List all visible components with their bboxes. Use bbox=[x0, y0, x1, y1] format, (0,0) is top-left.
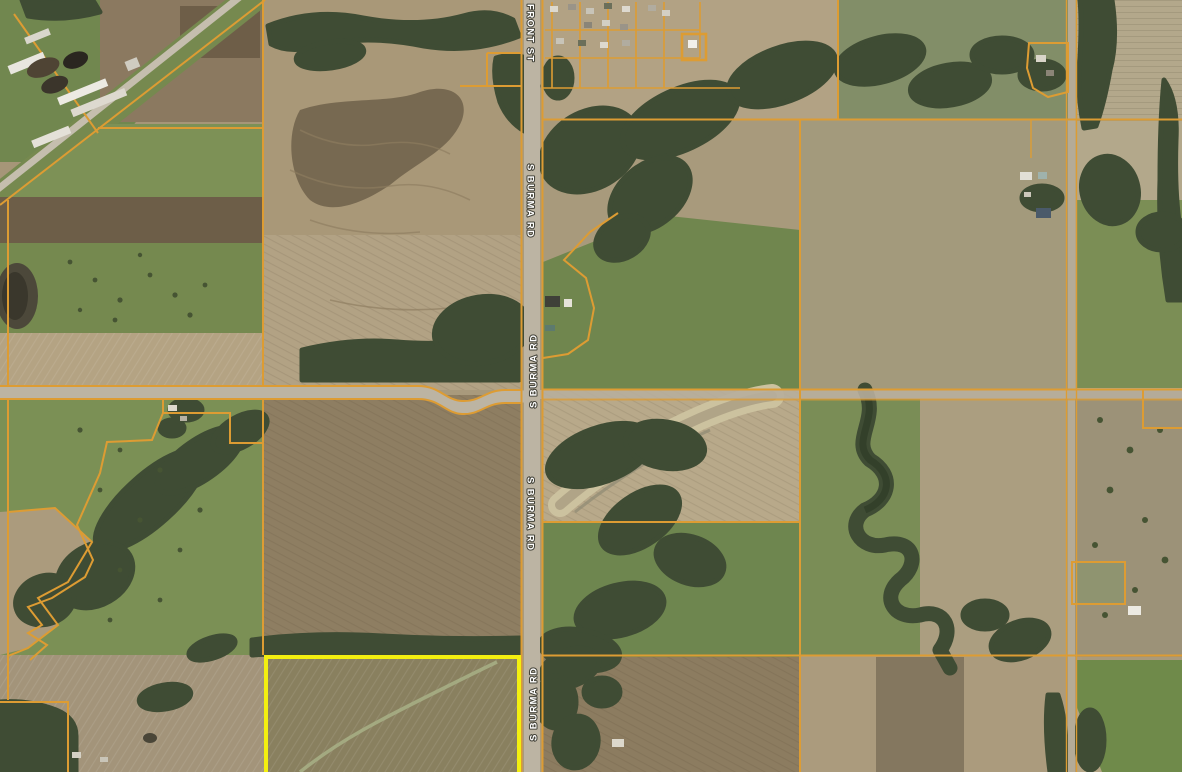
aerial-map[interactable]: FRONT ST S BURMA RD S BURMA RD S BURMA R… bbox=[0, 0, 1182, 772]
building-south bbox=[612, 739, 624, 747]
aerial-map-viewport[interactable]: FRONT ST S BURMA RD S BURMA RD S BURMA R… bbox=[0, 0, 1182, 772]
road-label-s-burma-rd-3: S BURMA RD bbox=[525, 477, 536, 551]
road-label-s-burma-rd-4: S BURMA RD bbox=[529, 667, 540, 741]
building-southwest-2 bbox=[100, 757, 108, 762]
road-label-front-st: FRONT ST bbox=[525, 4, 536, 63]
building-southwest-1 bbox=[72, 752, 81, 758]
road-label-s-burma-rd-2: S BURMA RD bbox=[529, 334, 540, 408]
east-road-surface bbox=[540, 390, 1182, 399]
road-label-s-burma-rd-1: S BURMA RD bbox=[525, 164, 536, 238]
building-southeast bbox=[1128, 606, 1141, 615]
